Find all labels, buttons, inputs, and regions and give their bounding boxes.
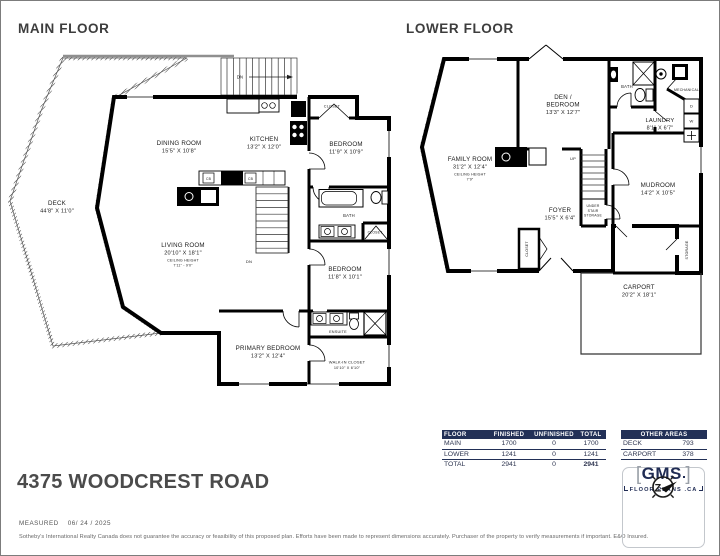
deck-area-name: DECK — [621, 440, 669, 447]
living-dims: 20'10" X 18'1" — [164, 251, 202, 257]
row-total-finished: 2941 — [486, 461, 532, 468]
floorplan-page: MAIN FLOOR LOWER FLOOR — [0, 0, 720, 556]
col-floor: FLOOR — [442, 432, 486, 438]
col-total: TOTAL — [576, 432, 606, 438]
dining-label: DINING ROOM — [157, 140, 202, 147]
laundry-dims: 8'1" X 6'7" — [647, 126, 674, 132]
family-ch-value: 7'9" — [467, 178, 474, 182]
washer-label: W — [690, 119, 694, 124]
cb-label-1: CB — [206, 177, 212, 181]
living-ch-label: CEILING HEIGHT — [167, 259, 199, 263]
bedroom2-dims: 11'8" X 10'1" — [328, 275, 362, 281]
measured-line: MEASURED06/ 24 / 2025 — [19, 520, 111, 527]
living-ch-value: 7'11" - 9'0" — [173, 264, 193, 268]
walkin-dims: 10'10" X 6'10" — [334, 366, 361, 370]
understair-3: STORAGE — [584, 214, 602, 218]
disclaimer-text: Sotheby's International Realty Canada do… — [19, 534, 648, 540]
storage-label: STORAGE — [685, 240, 689, 259]
mudroom-dims: 14'2" X 10'5" — [641, 191, 675, 197]
compass-icon: Z — [623, 468, 703, 504]
den-label-1: DEN / — [554, 94, 572, 101]
foyer-dims: 15'5" X 6'4" — [545, 216, 576, 222]
table-row-total: TOTAL 2941 0 2941 — [442, 460, 606, 470]
family-label: FAMILY ROOM — [448, 156, 493, 163]
bedroom1-label: BEDROOM — [329, 141, 362, 148]
measured-date: 06/ 24 / 2025 — [68, 520, 111, 527]
closet-top-label: CLOSET — [324, 105, 341, 109]
ensuite-label: ENSUITE — [329, 330, 347, 334]
kitchen-label: KITCHEN — [250, 136, 279, 143]
row-lower-total: 1241 — [576, 451, 606, 458]
other-areas-table: OTHER AREAS DECK 793 CARPORT 378 — [621, 430, 707, 460]
row-main-total: 1700 — [576, 440, 606, 447]
fridge — [291, 101, 306, 117]
table-row-lower: LOWER 1241 0 1241 — [442, 450, 606, 461]
carport-dims: 20'2" X 18'1" — [622, 293, 656, 299]
kitchen-dims: 13'2" X 12'0" — [247, 145, 281, 151]
gms-logo: Z [GMS] FLOOR PLANS .CA — [622, 467, 705, 548]
dn-interior-label: DN — [246, 259, 252, 264]
svg-text:Z: Z — [655, 483, 662, 495]
mudroom-label: MUDROOM — [641, 182, 676, 189]
laundry-label: LAUNDRY — [646, 118, 675, 124]
other-row-carport: CARPORT 378 — [621, 450, 707, 461]
bedroom1-dims: 11'9" X 10'9" — [329, 150, 363, 156]
row-main-finished: 1700 — [486, 440, 532, 447]
col-finished: FINISHED — [486, 432, 532, 438]
lower-bath-label: BATH — [621, 84, 633, 89]
floorplan-drawing: DN — [1, 1, 720, 431]
bedroom2-label: BEDROOM — [328, 266, 361, 273]
den-dims: 13'3" X 12'7" — [546, 110, 580, 116]
row-total-total: 2941 — [576, 461, 606, 468]
carport-area-name: CARPORT — [621, 451, 669, 458]
bath-label: BATH — [343, 213, 355, 218]
dryer-label: D — [690, 104, 693, 109]
den-label-2: BEDROOM — [546, 102, 579, 109]
mechanical-label: MECHANICAL — [674, 88, 699, 92]
measured-label: MEASURED — [19, 520, 59, 527]
main-floor-plan: DN — [10, 56, 393, 388]
primary-dims: 13'2" X 12'4" — [251, 354, 285, 360]
other-areas-header: OTHER AREAS — [621, 430, 707, 439]
carport-area-value: 378 — [669, 451, 707, 458]
main-interior-stairs — [256, 187, 288, 253]
foyer-label: FOYER — [549, 207, 572, 214]
stove — [290, 121, 307, 145]
closet-mid-label: CLOSET — [368, 231, 383, 235]
lower-fireplace — [495, 147, 546, 167]
other-row-deck: DECK 793 — [621, 439, 707, 450]
row-total-unfinished: 0 — [532, 461, 576, 468]
main-fireplace — [177, 187, 219, 206]
living-label: LIVING ROOM — [161, 242, 204, 249]
understair-1: UNDER — [586, 204, 599, 208]
row-total-floor: TOTAL — [442, 461, 486, 468]
floor-area-table: FLOOR FINISHED UNFINISHED TOTAL MAIN 170… — [442, 430, 606, 470]
understair-2: STAIR — [588, 209, 599, 213]
lower-floor-plan: DEN / BEDROOM 13'3" X 12'7" FAMILY ROOM … — [422, 45, 705, 354]
row-lower-unfinished: 0 — [532, 451, 576, 458]
deck-area-value: 793 — [669, 440, 707, 447]
table-row-main: MAIN 1700 0 1700 — [442, 439, 606, 450]
dining-dims: 15'5" X 10'8" — [162, 149, 196, 155]
deck-dims: 44'8" X 11'0" — [40, 209, 74, 215]
dn-exterior-label: DN — [237, 75, 243, 80]
area-table-header: FLOOR FINISHED UNFINISHED TOTAL — [442, 430, 606, 439]
family-ch-label: CEILING HEIGHT — [454, 173, 486, 177]
walkin-label: WALK-IN CLOSET — [329, 360, 366, 365]
cb-label-2: CB — [248, 177, 254, 181]
carport-label: CARPORT — [623, 284, 655, 291]
primary-label: PRIMARY BEDROOM — [236, 345, 301, 352]
row-main-floor: MAIN — [442, 440, 486, 447]
up-label: UP — [570, 156, 576, 161]
property-address: 4375 WOODCREST ROAD — [17, 471, 269, 494]
col-unfinished: UNFINISHED — [532, 432, 576, 438]
row-lower-floor: LOWER — [442, 451, 486, 458]
family-dims: 31'2" X 12'4" — [453, 165, 487, 171]
exterior-stairs — [221, 58, 297, 95]
row-lower-finished: 1241 — [486, 451, 532, 458]
deck-label: DECK — [48, 200, 67, 207]
lower-closet-label: CLOSET — [525, 241, 529, 257]
row-main-unfinished: 0 — [532, 440, 576, 447]
